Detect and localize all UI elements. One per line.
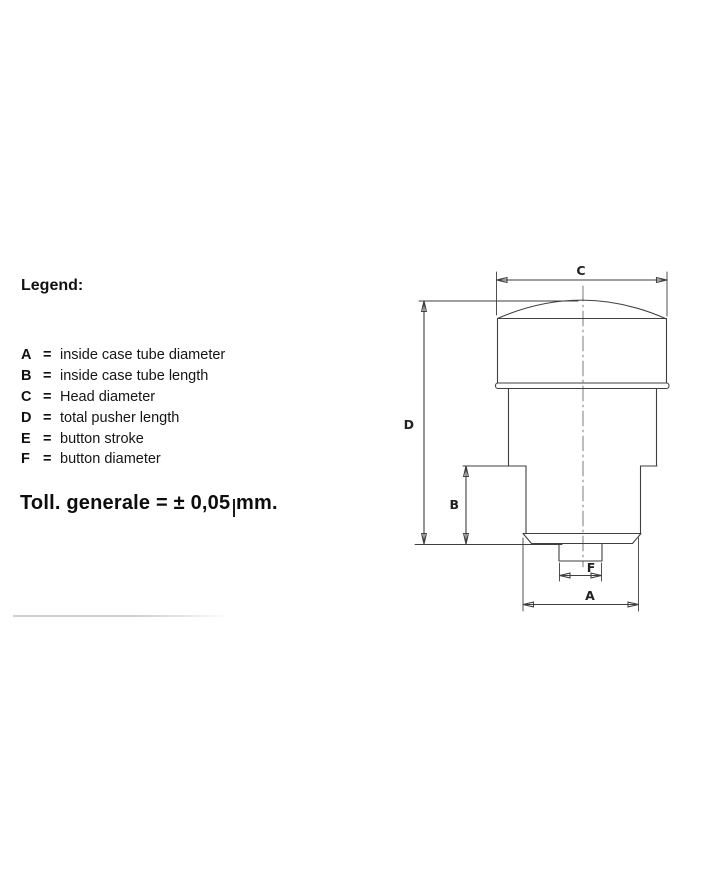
- legend-item-equals: =: [43, 410, 60, 426]
- legend-item-description: button diameter: [60, 451, 161, 467]
- legend-item-key: F: [21, 451, 43, 467]
- legend-item-description: inside case tube diameter: [60, 347, 225, 363]
- button-outline: [559, 544, 602, 562]
- head-dome-curve: [498, 300, 667, 319]
- pusher-technical-drawing: C D B F A: [396, 250, 705, 620]
- legend-item-equals: =: [43, 368, 60, 384]
- text-cursor-artifact: [233, 499, 235, 517]
- legend-item-equals: =: [43, 347, 60, 363]
- legend-item-key: B: [21, 368, 43, 384]
- legend-item-description: inside case tube length: [60, 368, 208, 384]
- legend-items: A = inside case tube diameter B = inside…: [21, 345, 225, 470]
- legend-item: D = total pusher length: [21, 407, 225, 428]
- legend-item-key: E: [21, 431, 43, 447]
- dim-label-b: B: [449, 497, 459, 512]
- legend-item: E = button stroke: [21, 428, 225, 449]
- dim-a-extension-lines: [523, 538, 639, 611]
- dim-label-c: C: [576, 263, 585, 278]
- divider-line: [13, 615, 231, 617]
- dim-label-a: A: [585, 588, 595, 603]
- legend-item: B = inside case tube length: [21, 366, 225, 387]
- legend-item: A = inside case tube diameter: [21, 345, 225, 366]
- legend-item-key: C: [21, 389, 43, 405]
- legend-item-description: total pusher length: [60, 410, 179, 426]
- legend-item-description: Head diameter: [60, 389, 155, 405]
- head-body-outline: [498, 319, 667, 384]
- legend-item: C = Head diameter: [21, 387, 225, 408]
- legend-heading: Legend:: [21, 277, 83, 295]
- legend-item-description: button stroke: [60, 431, 144, 447]
- legend-item: F = button diameter: [21, 449, 225, 470]
- tolerance-note: Toll. generale = ± 0,05 mm.: [20, 492, 278, 515]
- collar-chamfer-outline: [523, 534, 641, 544]
- scanned-drawing-page: Legend: A = inside case tube diameter B …: [0, 0, 705, 881]
- legend-item-key: A: [21, 347, 43, 363]
- legend-item-equals: =: [43, 389, 60, 405]
- dim-label-d: D: [404, 417, 414, 432]
- legend-item-key: D: [21, 410, 43, 426]
- upper-tube-outline: [509, 389, 657, 466]
- dim-label-f: F: [587, 560, 596, 575]
- legend-item-equals: =: [43, 431, 60, 447]
- legend-item-equals: =: [43, 451, 60, 467]
- head-bottom-lip: [496, 383, 670, 389]
